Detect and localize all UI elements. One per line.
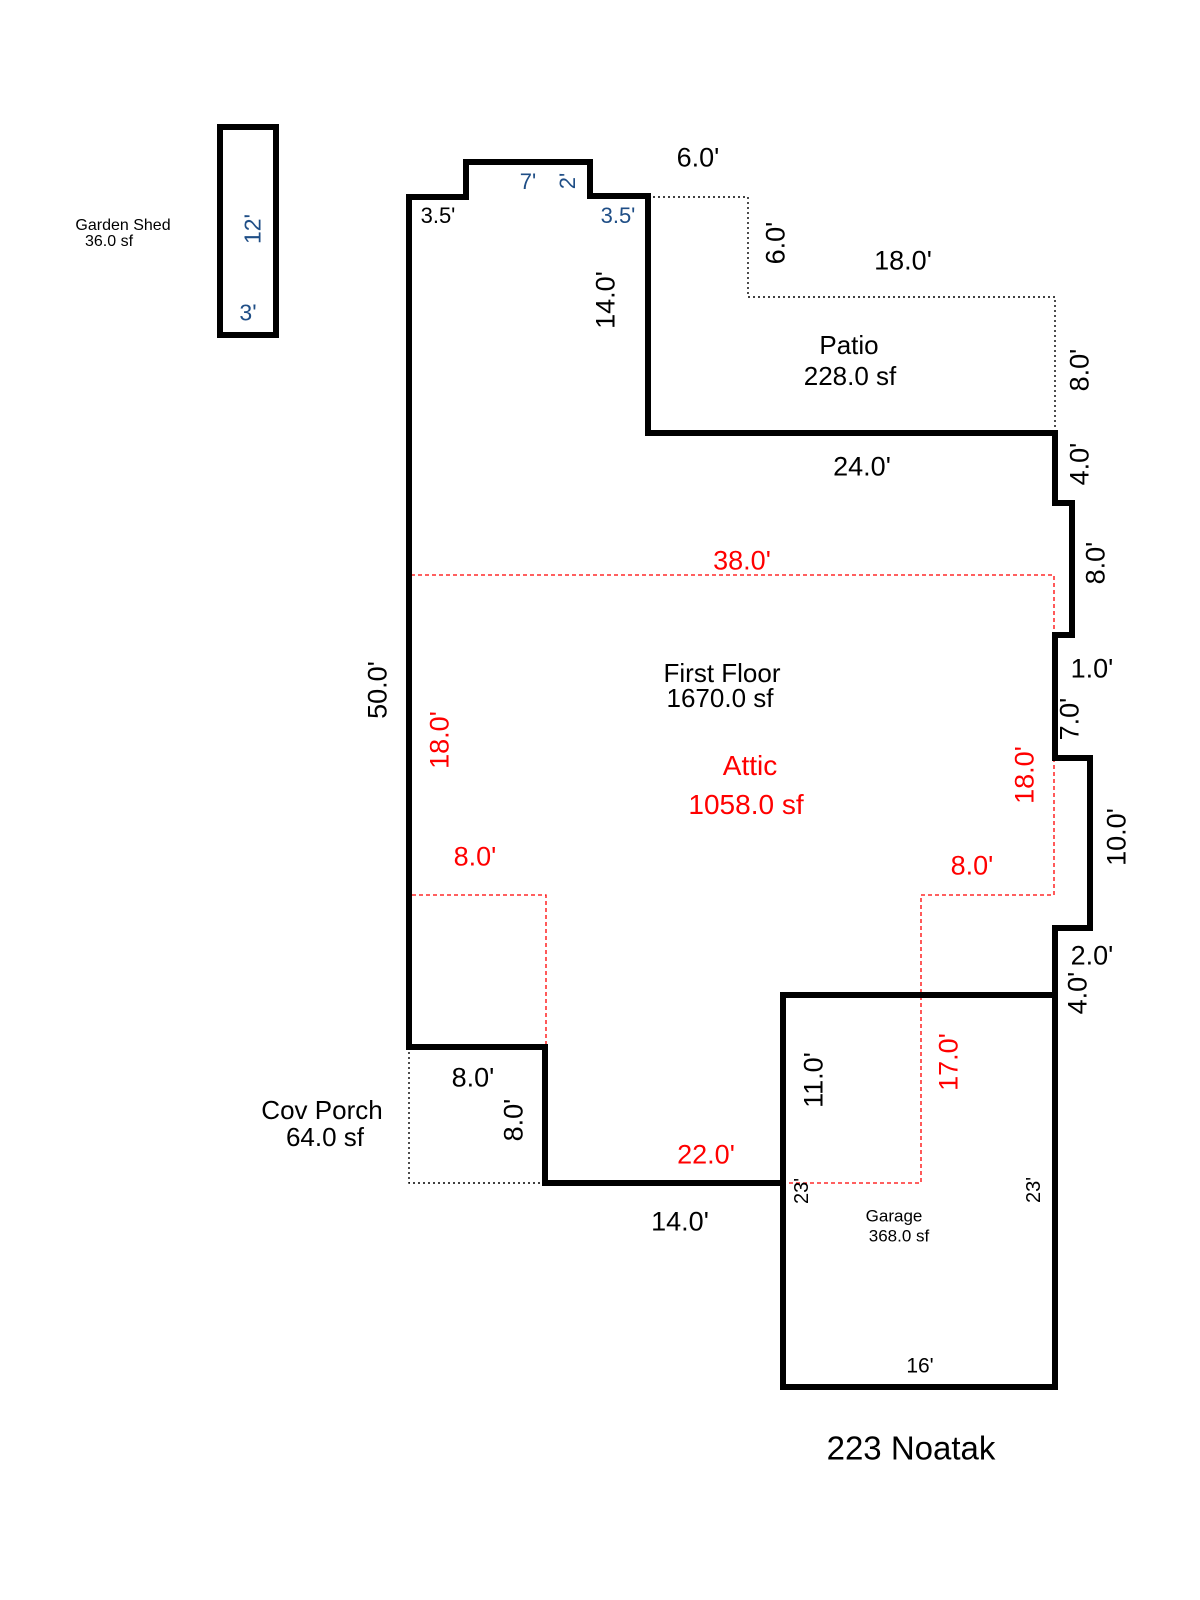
dim-garage-bottom: 16' (906, 1356, 933, 1377)
dim-right-step-2: 2.0' (1071, 943, 1114, 970)
garden-shed-label: Garden Shed (75, 218, 170, 234)
dim-garage-left: 23' (792, 1178, 812, 1204)
patio-outline (648, 197, 1055, 433)
dim-patio-top: 6.0' (677, 145, 720, 172)
dim-attic-top: 38.0' (713, 548, 771, 575)
dim-wing-wall: 14.0' (593, 271, 620, 329)
dim-right-wall-8: 8.0' (1083, 542, 1110, 585)
dim-bottom-wall: 14.0' (651, 1209, 709, 1236)
dim-bump-width: 7' (520, 171, 536, 193)
dim-shed-short: 3' (239, 302, 256, 325)
dim-left-wall: 50.0' (365, 661, 392, 719)
cov-porch-area: 64.0 sf (286, 1124, 364, 1150)
first-floor-area: 1670.0 sf (667, 685, 774, 711)
dim-right-step-1: 1.0' (1071, 656, 1114, 683)
garden-shed-area: 36.0 sf (85, 234, 133, 250)
dim-attic-left-inset: 8.0' (454, 844, 497, 871)
dim-right-wall-7: 7.0' (1057, 698, 1084, 741)
dim-patio-top-width: 18.0' (874, 248, 932, 275)
dim-attic-left: 18.0' (427, 711, 454, 769)
garage-area: 368.0 sf (869, 1228, 930, 1245)
dim-right-wall-10: 10.0' (1104, 808, 1131, 866)
dim-porch-top: 8.0' (452, 1065, 495, 1092)
dim-patio-right: 8.0' (1067, 349, 1094, 392)
patio-area: 228.0 sf (804, 363, 897, 389)
cov-porch-label: Cov Porch (261, 1097, 382, 1123)
garage-label: Garage (866, 1208, 923, 1225)
dim-attic-right-inset: 8.0' (951, 853, 994, 880)
address-label: 223 Noatak (827, 1432, 996, 1465)
dim-attic-right-lower: 17.0' (936, 1033, 963, 1091)
floor-plan-sketch: Garden Shed 36.0 sf 12' 3' 3.5' 7' 2' 3.… (0, 0, 1200, 1600)
dim-top-left-offset: 3.5' (421, 205, 456, 227)
attic-label: Attic (723, 752, 777, 780)
dim-attic-right: 18.0' (1012, 746, 1039, 804)
dim-garage-right: 23' (1024, 1177, 1044, 1203)
dim-garage-wall-upper: 11.0' (801, 1052, 828, 1108)
dim-shed-long: 12' (242, 214, 265, 244)
dim-right-wall-4a: 4.0' (1067, 443, 1094, 486)
attic-area: 1058.0 sf (688, 791, 803, 819)
dim-attic-bottom: 22.0' (677, 1142, 735, 1169)
dim-top-right-offset: 3.5' (601, 205, 636, 227)
dim-patio-inset: 6.0' (763, 222, 790, 265)
patio-label: Patio (819, 332, 878, 358)
dim-porch-side: 8.0' (501, 1099, 528, 1142)
dim-bump-depth: 2' (557, 173, 579, 189)
dim-patio-bottom: 24.0' (833, 454, 891, 481)
dim-right-wall-4b: 4.0' (1065, 972, 1092, 1015)
